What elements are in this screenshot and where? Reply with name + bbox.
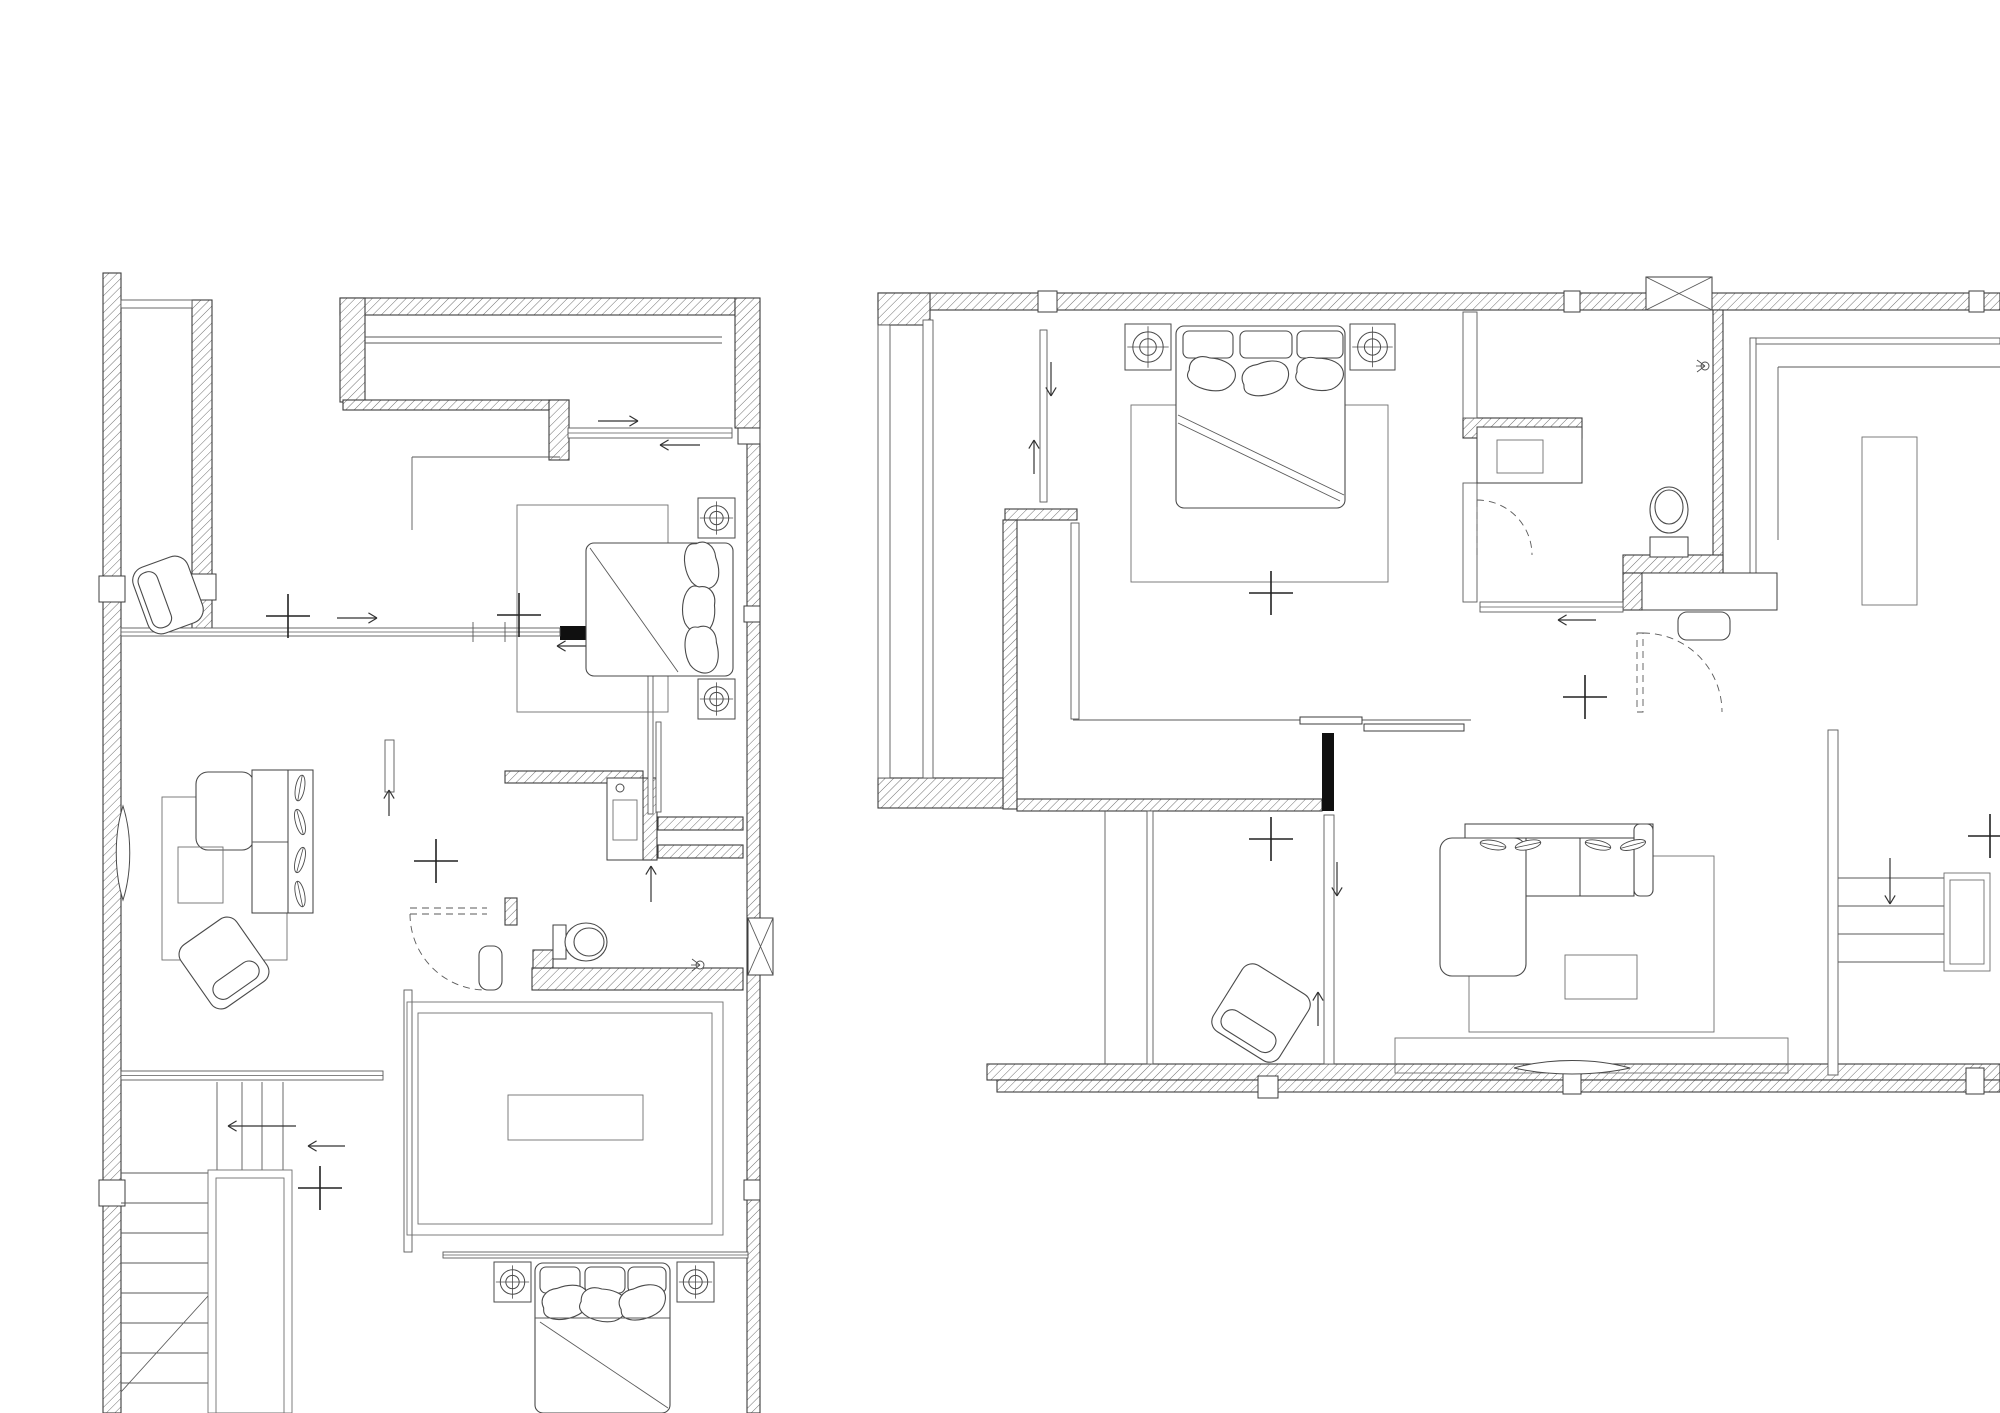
vanity-counter [607, 778, 643, 860]
column-marker [99, 1180, 125, 1206]
window-entry [1480, 602, 1623, 612]
window-north-bedroom [568, 428, 732, 438]
speaker [677, 1262, 714, 1302]
bath-wall-south [532, 968, 743, 990]
bedroom-wall-pier [549, 400, 569, 460]
sofa-arm [1634, 824, 1653, 896]
outer-wall-east-upper [735, 298, 760, 428]
bath-wall-west [1463, 312, 1477, 418]
column-marker [1966, 1068, 1984, 1094]
sliding-door-panel [385, 740, 394, 792]
sliding-door-panel [648, 666, 653, 814]
speaker [1125, 324, 1171, 370]
void-balustrade [1147, 811, 1153, 1064]
bath-wall-south [1623, 555, 1723, 573]
closet-slider [1040, 330, 1047, 502]
toilet-tank [553, 925, 566, 959]
corridor-wall-b [658, 845, 743, 858]
bedroom-wall-north [343, 400, 569, 410]
window-south-long [121, 628, 560, 636]
sliding-door-panel [656, 722, 661, 812]
column-marker [1038, 291, 1057, 312]
column-marker [99, 576, 125, 602]
toilet-seat [574, 928, 604, 956]
balcony-parapet [121, 300, 192, 308]
stair-balustrade [1828, 730, 1838, 1075]
back-cushion [1240, 331, 1292, 358]
glass-slider [1324, 815, 1334, 1064]
closet-wall-pier [1005, 509, 1077, 520]
room-pier [533, 950, 553, 968]
wall-solid-segment [1322, 733, 1334, 811]
kitchen-soffit [1750, 338, 2000, 344]
paper-background [0, 0, 2000, 1413]
wall-north [340, 298, 735, 315]
door-pouf [1678, 612, 1730, 640]
window-hall-west [121, 1071, 383, 1080]
sliding-panel [1364, 724, 1464, 731]
sliding-panel [1300, 717, 1362, 724]
corridor-wall-a [658, 817, 743, 830]
bath-wall-west-lower [1463, 483, 1477, 602]
sofa-chaise [196, 772, 254, 850]
bath-wall-east [1713, 310, 1723, 573]
column-marker [1258, 1076, 1278, 1098]
wall-south-a [987, 1064, 2000, 1080]
back-cushion [1297, 331, 1343, 358]
window-south-room [443, 1252, 748, 1258]
wardrobe-front [1071, 523, 1079, 719]
narrow-room-wall-south [878, 778, 1003, 808]
floor-plan-drawing [0, 0, 2000, 1413]
sofa-back [1465, 824, 1653, 838]
sofa-seat [252, 770, 288, 913]
toilet-seat [1655, 490, 1683, 524]
bedroom-wall-south [1017, 799, 1322, 811]
back-cushion [1183, 331, 1233, 358]
entry-pier [1623, 573, 1642, 610]
wall-north-corner [878, 293, 930, 325]
wall-south-b [997, 1080, 2000, 1092]
faucet [616, 784, 624, 792]
wall-west [878, 325, 890, 778]
column-marker [738, 428, 760, 444]
column-marker [744, 1180, 760, 1200]
entry-console [1642, 573, 1777, 610]
toilet-tank [1650, 537, 1688, 557]
closet-front [923, 320, 933, 778]
interior-wall [1003, 520, 1017, 809]
column-marker [1969, 291, 1984, 312]
column-marker [744, 606, 760, 622]
speaker [494, 1262, 531, 1302]
bath-wall-pier [505, 898, 517, 925]
column-marker [1564, 291, 1580, 312]
door-pouf [479, 946, 502, 990]
sofa-chaise [1440, 838, 1526, 976]
speaker [1350, 324, 1395, 370]
floor-plan-document [0, 0, 2000, 1413]
speaker [698, 679, 735, 719]
kitchen-soffit [1750, 338, 1756, 573]
partition-line [404, 990, 412, 1252]
bath-vanity [1477, 427, 1582, 483]
speaker [698, 498, 735, 538]
wall-north-pier [340, 298, 365, 402]
door-leaf [1637, 633, 1643, 712]
